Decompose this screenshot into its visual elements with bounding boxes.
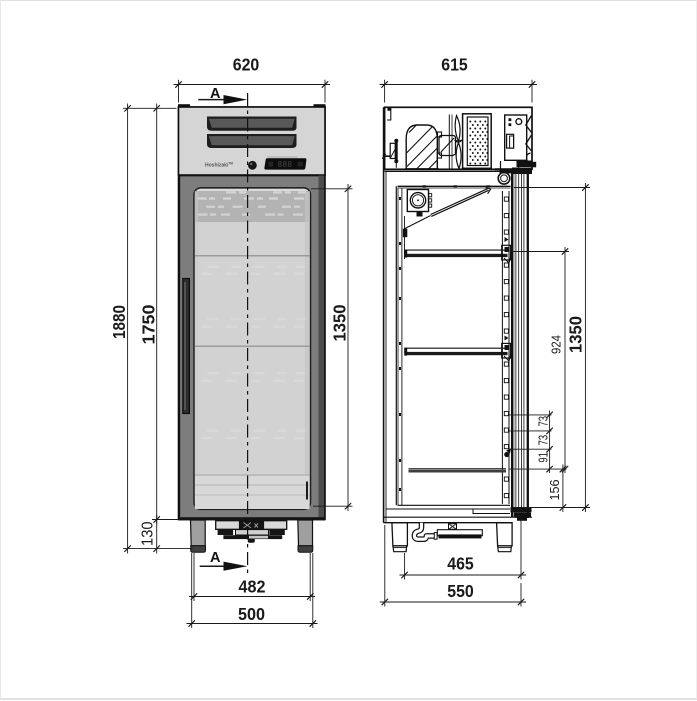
svg-text:500: 500 (238, 604, 265, 624)
svg-text:1750: 1750 (138, 304, 158, 344)
svg-text:1350: 1350 (566, 316, 586, 353)
svg-text:73: 73 (535, 416, 550, 427)
svg-text:130: 130 (140, 521, 157, 546)
svg-text:73: 73 (535, 435, 550, 446)
svg-text:924: 924 (549, 335, 564, 354)
svg-text:550: 550 (447, 581, 474, 601)
svg-text:888: 888 (278, 160, 293, 169)
svg-text:A: A (210, 550, 221, 566)
svg-text:482: 482 (239, 577, 266, 597)
svg-text:465: 465 (447, 554, 474, 574)
svg-text:156: 156 (547, 480, 562, 501)
svg-text:91: 91 (535, 452, 550, 463)
svg-text:1880: 1880 (109, 305, 129, 339)
svg-text:615: 615 (441, 55, 468, 75)
svg-text:620: 620 (233, 55, 260, 75)
svg-text:1350: 1350 (330, 304, 350, 341)
